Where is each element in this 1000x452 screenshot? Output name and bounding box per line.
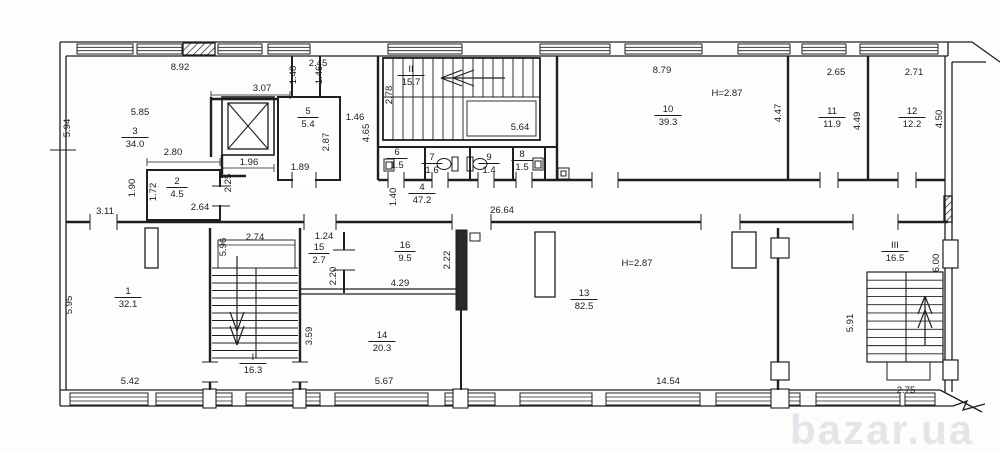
dimension-label: H=2.87 bbox=[712, 88, 743, 99]
room-label-12: 1212.2 bbox=[899, 106, 926, 130]
room-number: 11 bbox=[827, 106, 837, 117]
sink-basin-icon bbox=[535, 161, 541, 168]
room-number: 8 bbox=[519, 149, 524, 160]
pier-stair3-right-top bbox=[943, 240, 958, 268]
room-area: 32.1 bbox=[119, 299, 138, 310]
pilaster-room13-a bbox=[535, 232, 555, 297]
floor-plan: 334.024.555.4II15.761.571.691.481.5447.2… bbox=[0, 0, 1000, 452]
hatched-wall-segment-right bbox=[944, 196, 952, 222]
window bbox=[802, 44, 846, 54]
elevator-shaft bbox=[222, 97, 274, 155]
room-area: 39.3 bbox=[659, 117, 678, 128]
pier-stair3-left-bottom bbox=[771, 362, 789, 380]
dimension-label: 4.65 bbox=[361, 124, 372, 143]
stair3-lower-landing bbox=[887, 362, 930, 380]
room-number: 13 bbox=[579, 288, 590, 299]
interior-walls bbox=[66, 56, 958, 390]
fixtures bbox=[384, 157, 569, 241]
wall-pier-room13 bbox=[456, 230, 467, 310]
dimension-label: 5.95 bbox=[64, 296, 75, 315]
window bbox=[625, 44, 702, 54]
window bbox=[268, 44, 310, 54]
stair3-treads bbox=[867, 272, 943, 362]
room-area: 1.5 bbox=[515, 162, 528, 173]
room-number: 5 bbox=[305, 106, 310, 117]
room-number: 16 bbox=[400, 240, 411, 251]
room-number: 7 bbox=[429, 152, 434, 163]
room-number: III bbox=[891, 240, 899, 251]
room-number: 9 bbox=[486, 152, 491, 163]
dimension-label: 3.59 bbox=[304, 327, 315, 346]
stairwell-1 bbox=[212, 240, 298, 358]
room-label-3: 334.0 bbox=[122, 126, 149, 150]
dimension-label: 26.64 bbox=[490, 205, 514, 216]
watermark: bazar.ua bbox=[790, 406, 974, 452]
window bbox=[218, 44, 262, 54]
window bbox=[816, 393, 900, 405]
room-area: 11.9 bbox=[823, 119, 841, 130]
room-area: 16.3 bbox=[244, 365, 263, 376]
dimension-label: 1.72 bbox=[148, 183, 159, 202]
room-number: 10 bbox=[663, 104, 674, 115]
room-label-9: 91.4 bbox=[479, 152, 500, 176]
room-area: 82.5 bbox=[575, 301, 594, 312]
room-area: 9.5 bbox=[398, 253, 411, 264]
pilaster-room13-b bbox=[732, 232, 756, 268]
dimension-label: 5.64 bbox=[511, 122, 530, 133]
room-label-5: 55.4 bbox=[298, 106, 319, 130]
pier-stair3-right-bottom bbox=[943, 360, 958, 380]
room-label-14: 1420.3 bbox=[369, 330, 396, 354]
window bbox=[77, 44, 133, 54]
window bbox=[246, 393, 320, 405]
room-area: 34.0 bbox=[126, 139, 145, 150]
room-area: 47.2 bbox=[413, 195, 432, 206]
opening-ticks bbox=[50, 91, 916, 382]
room-label-I: I16.3 bbox=[240, 352, 267, 376]
toilet-tank-icon bbox=[452, 157, 458, 171]
window bbox=[606, 393, 700, 405]
dimension-label: 1.48 bbox=[288, 66, 299, 85]
stair1-treads bbox=[212, 268, 298, 358]
dimension-label: 2.71 bbox=[905, 67, 924, 78]
dimension-label: 2.22 bbox=[442, 251, 453, 270]
hatched-wall-segment-top bbox=[183, 43, 215, 55]
room-number: 15 bbox=[314, 242, 325, 253]
room-area: 1.6 bbox=[425, 165, 438, 176]
pier bbox=[771, 389, 789, 408]
pier bbox=[203, 389, 216, 408]
dimension-label: 8.79 bbox=[653, 65, 672, 76]
room-label-II: II15.7 bbox=[398, 64, 425, 88]
room-area: 16.5 bbox=[886, 253, 905, 264]
window bbox=[738, 44, 790, 54]
dimension-label: 8.92 bbox=[171, 62, 190, 73]
room-label-2: 24.5 bbox=[167, 176, 188, 200]
pier-stair3-left-top bbox=[771, 238, 789, 258]
room-label-15: 152.7 bbox=[309, 242, 330, 266]
utility-box-inner bbox=[561, 171, 566, 176]
dimension-label: 5.91 bbox=[845, 314, 856, 333]
window bbox=[137, 44, 182, 54]
scanned-floor-plan-page: 334.024.555.4II15.761.571.691.481.5447.2… bbox=[0, 0, 1000, 452]
room-area: 20.3 bbox=[373, 343, 392, 354]
window bbox=[156, 393, 232, 405]
windows bbox=[70, 44, 938, 405]
window bbox=[540, 44, 610, 54]
stair2-treads-lower bbox=[393, 97, 463, 140]
dimension-label: 1.46 bbox=[346, 112, 365, 123]
stair3-outline bbox=[867, 272, 943, 362]
room-label-10: 1039.3 bbox=[655, 104, 682, 128]
room-area: 4.5 bbox=[170, 189, 183, 200]
room-number: 6 bbox=[394, 147, 399, 158]
room-number: 1 bbox=[125, 286, 130, 297]
room-number: 2 bbox=[174, 176, 179, 187]
room-area: 15.7 bbox=[402, 77, 421, 88]
stair-direction-arrow-down bbox=[230, 256, 244, 345]
room-label-III: III16.5 bbox=[882, 240, 909, 264]
dimension-label: 5.94 bbox=[62, 119, 73, 138]
dimension-label: 1.90 bbox=[127, 179, 138, 198]
room-number: I bbox=[252, 352, 255, 363]
dimension-label: 3.11 bbox=[96, 206, 114, 217]
dimension-label: 2.74 bbox=[246, 232, 265, 243]
dimension-label: 4.49 bbox=[852, 112, 863, 131]
window bbox=[520, 393, 592, 405]
window bbox=[335, 393, 428, 405]
dimension-label: 1.89 bbox=[291, 162, 310, 173]
dimension-label: 1.46 bbox=[314, 66, 325, 85]
room-label-13: 1382.5 bbox=[571, 288, 598, 312]
door-room5 bbox=[293, 176, 315, 184]
room-number: 14 bbox=[377, 330, 388, 341]
room-area: 1.4 bbox=[482, 165, 495, 176]
outer-walls bbox=[60, 42, 1000, 412]
dimension-label: 3.07 bbox=[253, 83, 272, 94]
window bbox=[388, 44, 462, 54]
dimension-label: 2.80 bbox=[164, 147, 183, 158]
toilet-bowl-icon bbox=[437, 159, 451, 170]
dimension-label: 5.42 bbox=[121, 376, 140, 387]
dimension-label: 5.67 bbox=[375, 376, 394, 387]
dimension-label: 2.87 bbox=[321, 133, 332, 152]
room-number: 12 bbox=[907, 106, 918, 117]
dimension-label: 2.65 bbox=[827, 67, 846, 78]
dimension-label: 4.29 bbox=[391, 278, 410, 289]
room-label-16: 169.5 bbox=[395, 240, 416, 264]
stairwell-3 bbox=[867, 272, 943, 380]
dimension-label: 5.85 bbox=[131, 107, 150, 118]
dimension-label: 2.20 bbox=[328, 267, 339, 286]
ticks-doors-lower bbox=[50, 150, 355, 382]
dimension-label: 2.78 bbox=[384, 86, 395, 105]
dimension-label: 6.00 bbox=[931, 254, 942, 273]
dimension-label: 1.24 bbox=[315, 231, 334, 242]
pier bbox=[453, 389, 468, 408]
vent-shaft bbox=[145, 228, 158, 268]
room-number: 4 bbox=[419, 182, 424, 193]
dimension-label: H=2.87 bbox=[622, 258, 653, 269]
dimension-label: 1.40 bbox=[388, 188, 399, 207]
dimension-label: 5.96 bbox=[218, 238, 229, 257]
dimension-label: 14.54 bbox=[656, 376, 680, 387]
dimension-label: 1.96 bbox=[240, 157, 259, 168]
dimension-labels: 8.925.945.852.803.072.451.481.461.462.87… bbox=[62, 58, 945, 396]
window bbox=[860, 44, 938, 54]
pier bbox=[293, 389, 306, 408]
room-area: 1.5 bbox=[390, 160, 403, 171]
room-number: 3 bbox=[132, 126, 137, 137]
utility-box-icon bbox=[470, 233, 480, 241]
dimension-label: 4.47 bbox=[773, 104, 784, 123]
room-label-4: 447.2 bbox=[409, 182, 436, 206]
window bbox=[70, 393, 148, 405]
dimension-label: 2.25 bbox=[223, 174, 234, 193]
dimension-label: 2.75 bbox=[897, 385, 916, 396]
room-area: 12.2 bbox=[903, 119, 922, 130]
room-area: 5.4 bbox=[301, 119, 314, 130]
utility-box-icon bbox=[558, 168, 569, 179]
dimension-label: 2.64 bbox=[191, 202, 210, 213]
room-area: 2.7 bbox=[312, 255, 325, 266]
room-label-11: 1111.9 bbox=[819, 106, 846, 130]
room-label-8: 81.5 bbox=[512, 149, 533, 173]
room-number: II bbox=[408, 64, 413, 75]
room-label-1: 132.1 bbox=[115, 286, 142, 310]
dimension-label: 4.50 bbox=[934, 110, 945, 129]
stair1-landing bbox=[218, 240, 295, 268]
